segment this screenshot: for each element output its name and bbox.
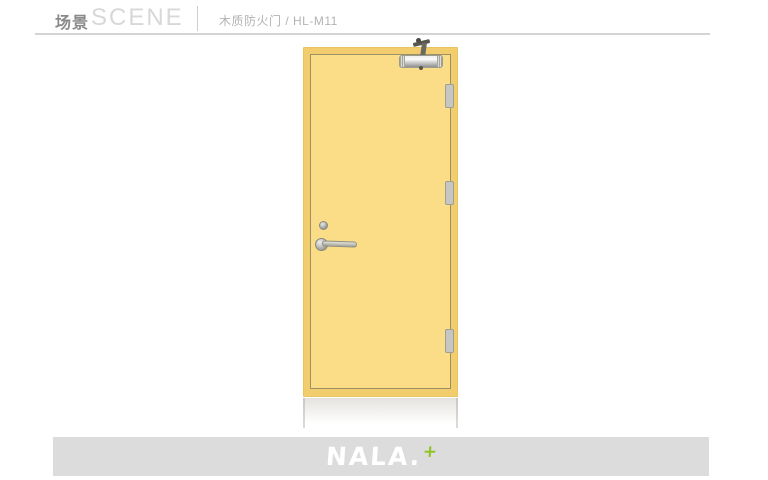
header-rule bbox=[35, 33, 710, 35]
nala-logo-text: NALA. bbox=[325, 442, 423, 471]
door-handle-lever bbox=[322, 240, 357, 247]
door-hinge-middle bbox=[445, 181, 454, 205]
door-handle bbox=[315, 236, 360, 252]
door-hinge-bottom bbox=[445, 329, 454, 353]
door-panel bbox=[310, 54, 451, 389]
footer-bar: NALA.+ bbox=[53, 437, 709, 476]
door-closer bbox=[399, 38, 445, 70]
product-name-label: 木质防火门 / HL-M11 bbox=[219, 12, 338, 29]
page-title-en: SCENE bbox=[91, 4, 184, 32]
nala-logo-plus-icon: + bbox=[422, 442, 438, 462]
door-reflection bbox=[303, 398, 458, 428]
page-title-cn: 场景 bbox=[55, 9, 89, 33]
header-divider bbox=[197, 6, 198, 31]
nala-logo: NALA.+ bbox=[325, 442, 437, 471]
door-closer-arm-knob bbox=[416, 38, 421, 43]
door-hinge-top bbox=[445, 84, 454, 108]
header: 场景 SCENE 木质防火门 / HL-M11 bbox=[0, 0, 768, 36]
page: 场景 SCENE 木质防火门 / HL-M11 bbox=[0, 0, 768, 480]
lock-cylinder bbox=[319, 221, 328, 230]
door-closer-screw bbox=[419, 66, 423, 70]
door-illustration bbox=[303, 47, 458, 397]
